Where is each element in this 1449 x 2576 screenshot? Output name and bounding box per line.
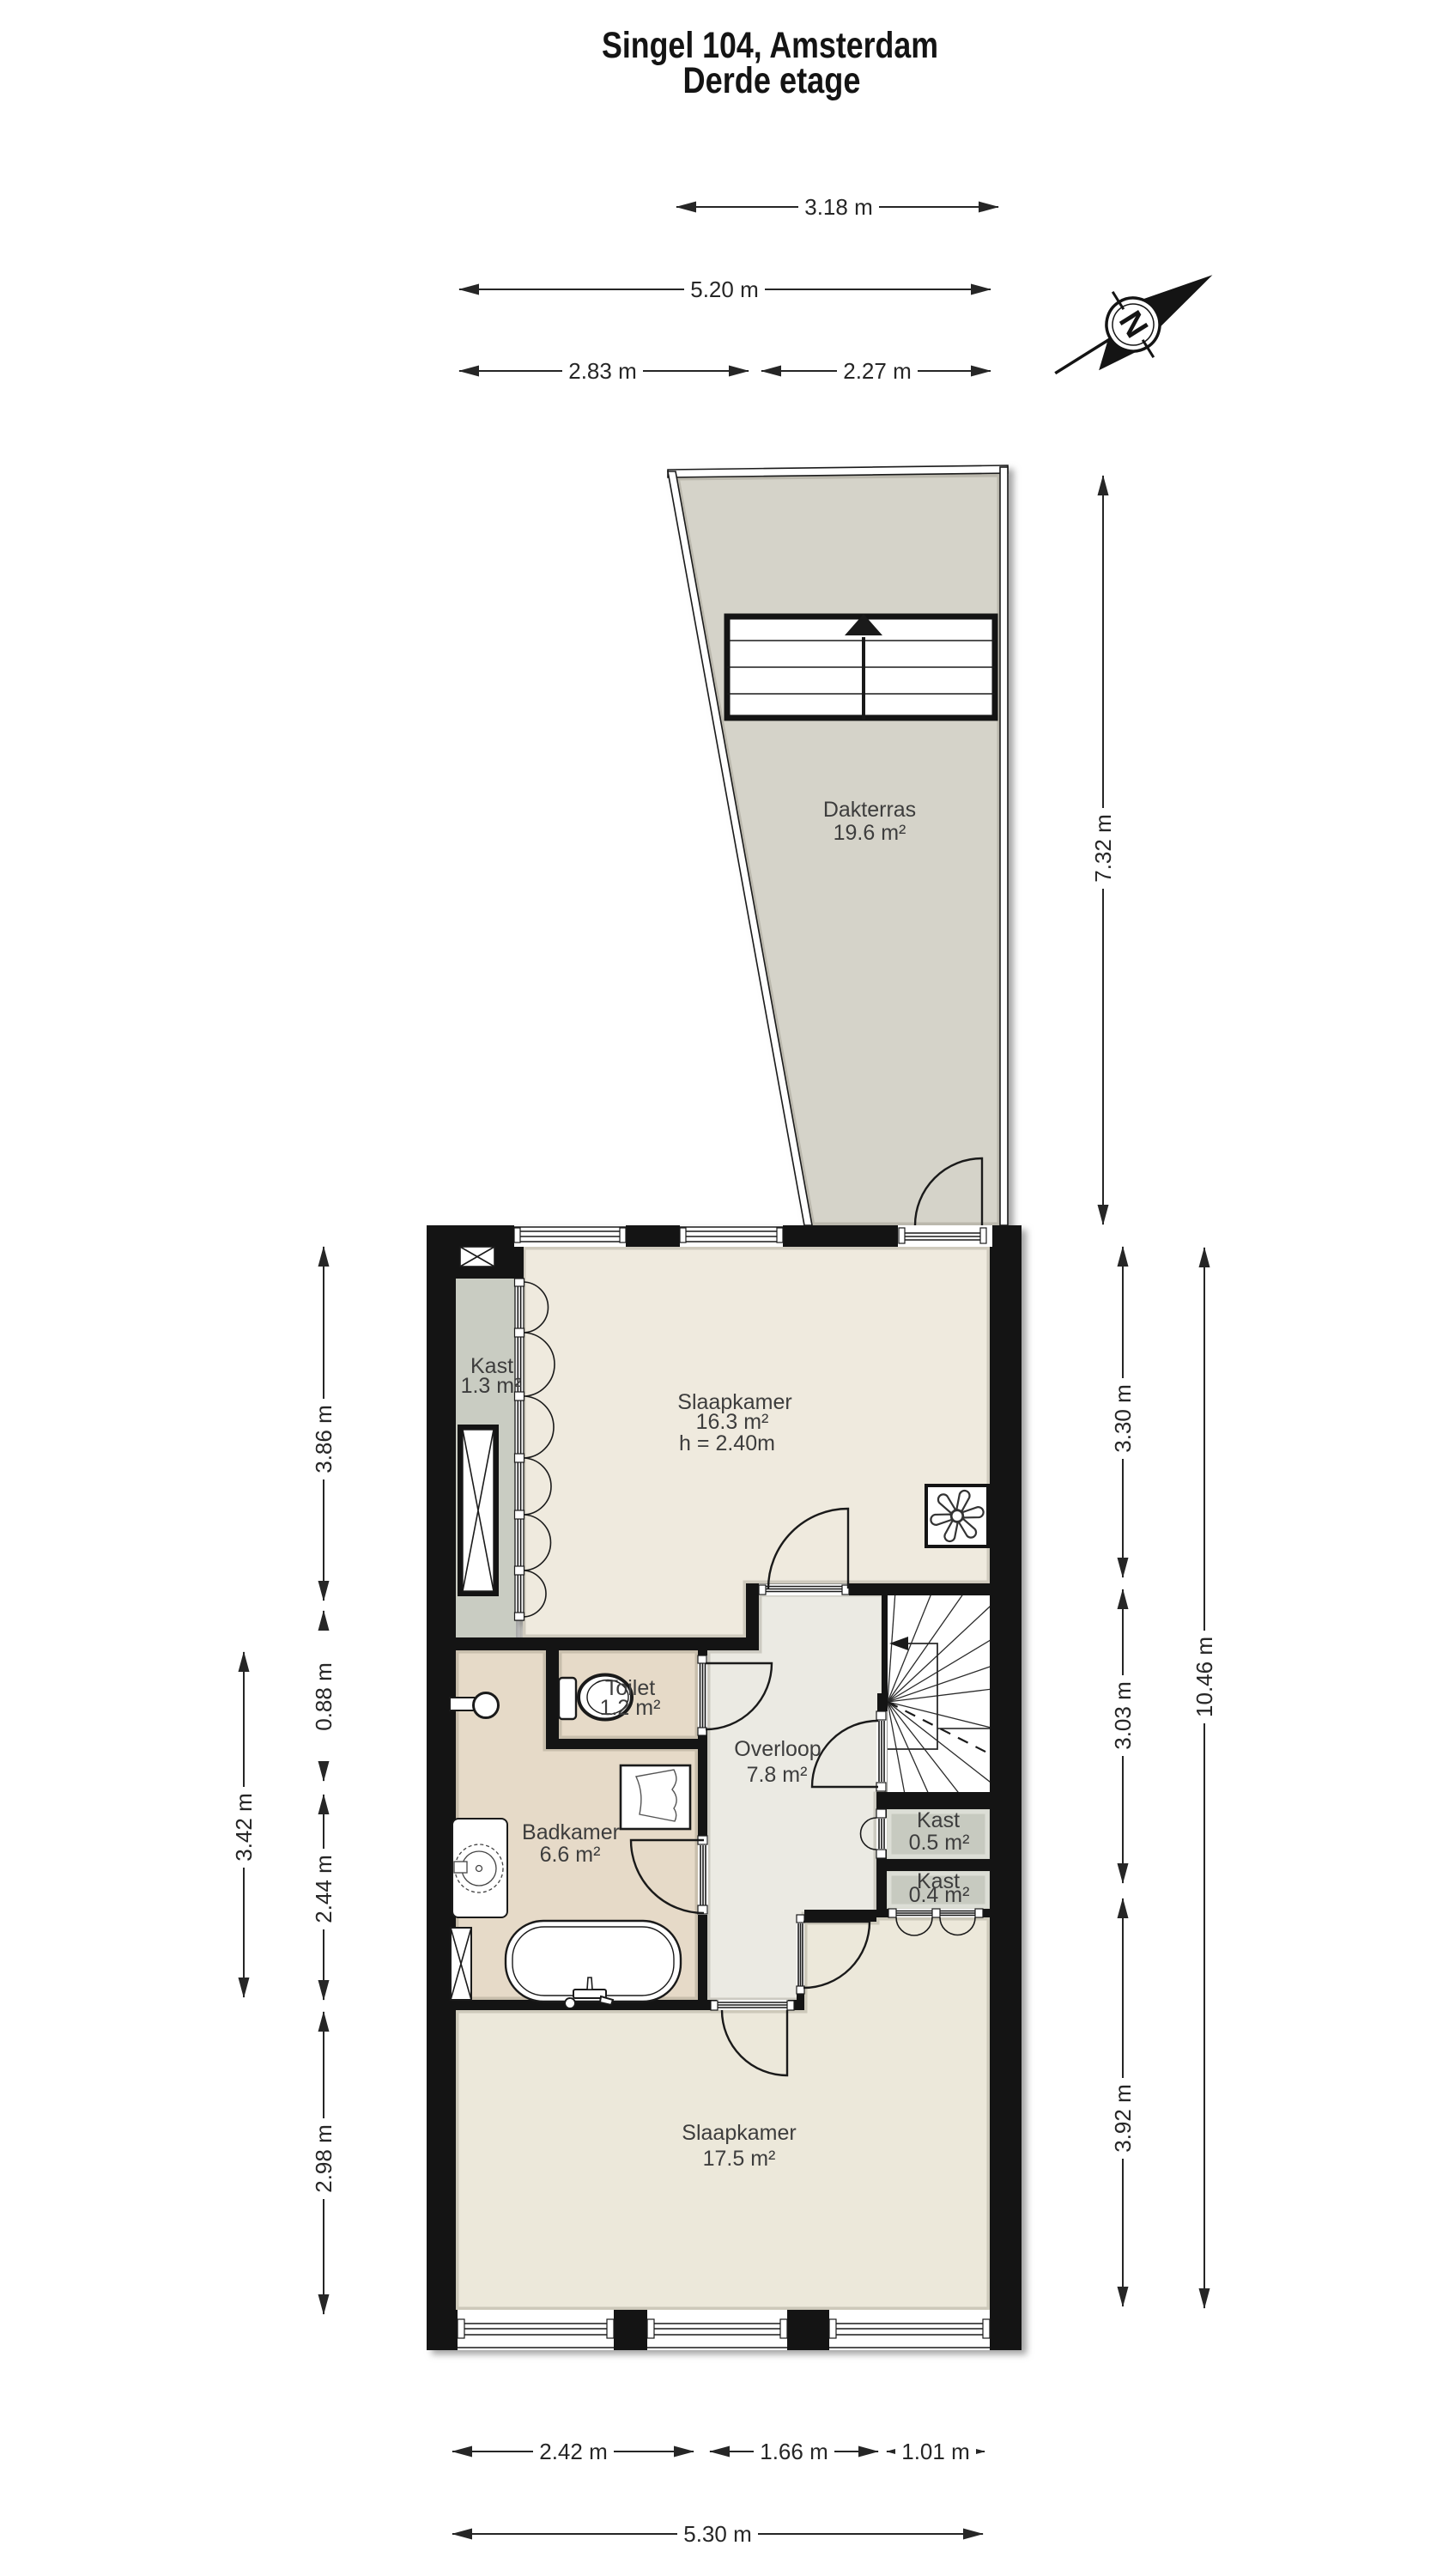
svg-text:Dakterras: Dakterras: [823, 798, 916, 822]
svg-text:h = 2.40m: h = 2.40m: [679, 1431, 775, 1455]
svg-text:2.27 m: 2.27 m: [843, 358, 912, 384]
svg-text:19.6 m²: 19.6 m²: [834, 821, 906, 845]
svg-text:7.8 m²: 7.8 m²: [747, 1763, 808, 1787]
svg-text:2.44 m: 2.44 m: [311, 1855, 336, 1923]
svg-text:Badkamer: Badkamer: [522, 1820, 620, 1844]
svg-text:17.5 m²: 17.5 m²: [703, 2147, 776, 2171]
svg-text:Slaapkamer: Slaapkamer: [682, 2121, 796, 2145]
svg-text:Overloop: Overloop: [734, 1737, 821, 1761]
svg-text:5.20 m: 5.20 m: [690, 276, 759, 302]
svg-text:Derde etage: Derde etage: [683, 60, 861, 101]
svg-text:2.98 m: 2.98 m: [311, 2124, 336, 2193]
svg-text:1.2 m²: 1.2 m²: [600, 1696, 661, 1720]
svg-text:3.42 m: 3.42 m: [231, 1793, 257, 1862]
svg-text:6.6 m²: 6.6 m²: [540, 1843, 601, 1867]
svg-text:1.3 m²: 1.3 m²: [461, 1374, 522, 1398]
svg-text:10.46 m: 10.46 m: [1191, 1637, 1217, 1717]
svg-text:3.92 m: 3.92 m: [1110, 2084, 1136, 2153]
svg-text:0.5 m²: 0.5 m²: [909, 1831, 970, 1855]
svg-text:0.4 m²: 0.4 m²: [909, 1883, 970, 1907]
svg-text:7.32 m: 7.32 m: [1090, 814, 1116, 883]
svg-text:0.88 m: 0.88 m: [311, 1662, 336, 1731]
svg-text:3.86 m: 3.86 m: [311, 1405, 336, 1473]
svg-text:2.83 m: 2.83 m: [568, 358, 637, 384]
svg-text:2.42 m: 2.42 m: [539, 2439, 608, 2464]
svg-text:Kast: Kast: [917, 1808, 960, 1832]
svg-text:3.18 m: 3.18 m: [804, 194, 873, 220]
svg-text:3.30 m: 3.30 m: [1110, 1384, 1136, 1453]
svg-text:1.01 m: 1.01 m: [901, 2439, 970, 2464]
svg-text:5.30 m: 5.30 m: [683, 2521, 752, 2547]
svg-text:1.66 m: 1.66 m: [760, 2439, 828, 2464]
svg-text:3.03 m: 3.03 m: [1110, 1681, 1136, 1750]
svg-text:16.3 m²: 16.3 m²: [696, 1410, 769, 1434]
